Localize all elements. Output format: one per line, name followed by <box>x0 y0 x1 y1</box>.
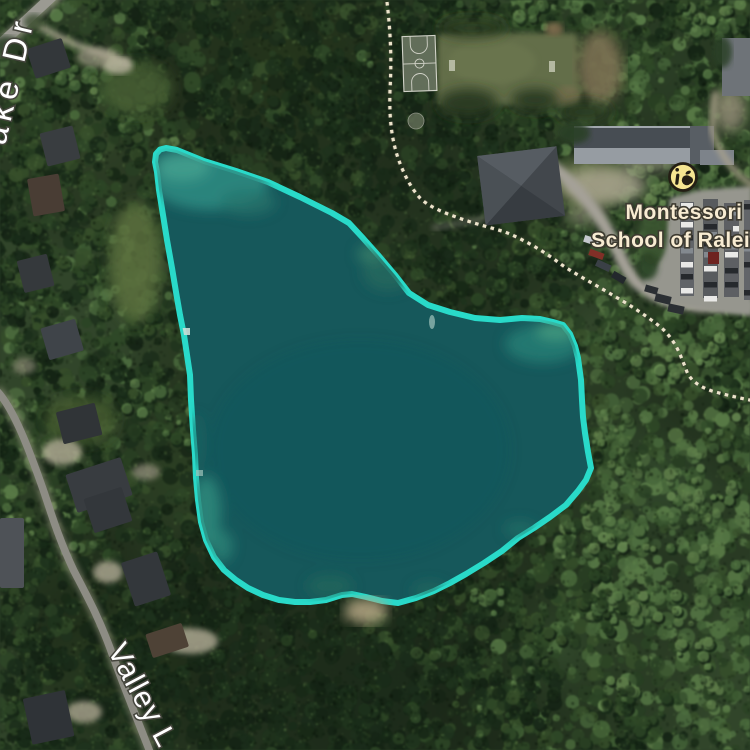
svg-text:Montessori: Montessori <box>625 201 742 224</box>
svg-text:School of Raleigh: School of Raleigh <box>591 229 750 252</box>
svg-text:ake Dr: ake Dr <box>0 12 41 147</box>
